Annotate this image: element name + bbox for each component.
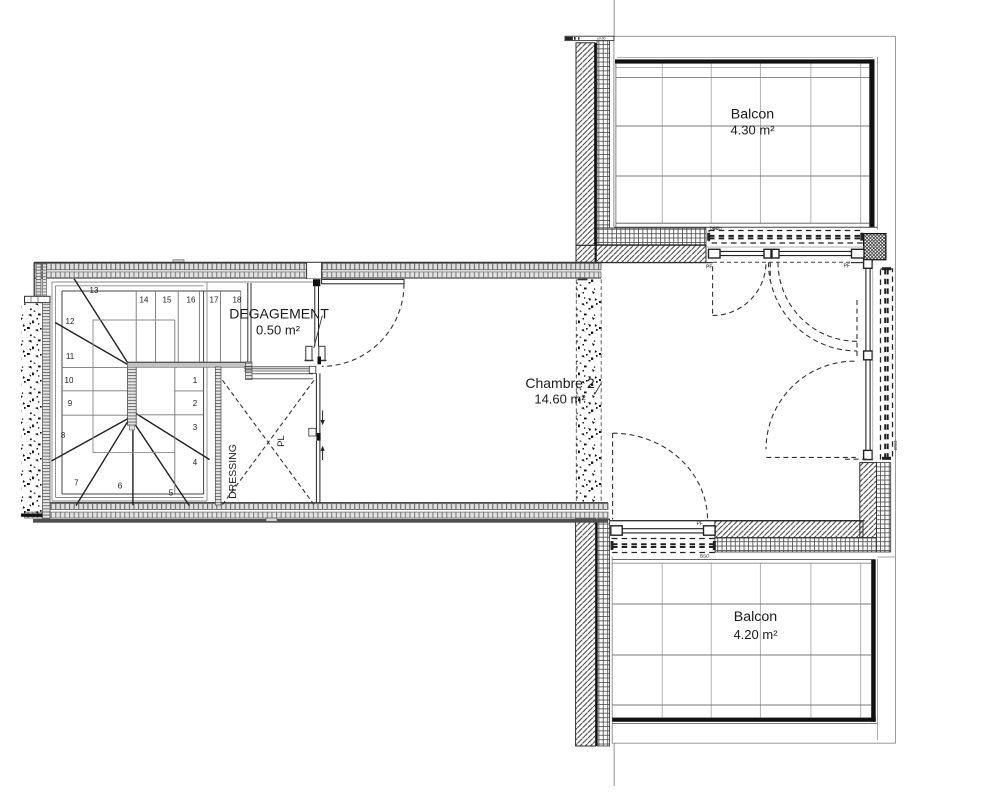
svg-text:PL: PL	[276, 435, 287, 447]
svg-text:14.60 m²: 14.60 m²	[534, 392, 586, 407]
svg-text:DEGAGEMENT: DEGAGEMENT	[229, 306, 329, 322]
svg-text:18: 18	[233, 295, 242, 304]
svg-text:Balcon: Balcon	[734, 609, 777, 625]
svg-text:BSO: BSO	[700, 554, 710, 559]
svg-text:Balcon: Balcon	[731, 106, 774, 122]
svg-text:8: 8	[61, 431, 66, 440]
svg-text:13: 13	[90, 286, 99, 295]
svg-text:16: 16	[187, 295, 196, 304]
svg-text:PF: PF	[697, 521, 703, 527]
svg-text:9: 9	[68, 399, 73, 408]
svg-text:5: 5	[169, 488, 174, 497]
svg-text:BSO: BSO	[893, 440, 898, 450]
svg-text:7: 7	[74, 478, 79, 487]
svg-text:DRESSING: DRESSING	[227, 444, 239, 499]
svg-text:12: 12	[66, 317, 75, 326]
svg-text:11: 11	[66, 352, 75, 361]
svg-text:10: 10	[65, 376, 74, 385]
svg-text:4: 4	[193, 458, 198, 467]
svg-text:17: 17	[210, 295, 219, 304]
svg-text:0.50 m²: 0.50 m²	[256, 323, 301, 338]
svg-text:PF: PF	[706, 265, 712, 271]
svg-text:15: 15	[163, 295, 172, 304]
svg-text:±0,00: ±0,00	[597, 37, 606, 41]
svg-text:14: 14	[140, 295, 149, 304]
svg-text:6: 6	[118, 481, 123, 490]
svg-text:1: 1	[193, 376, 198, 385]
svg-text:2: 2	[193, 399, 198, 408]
svg-text:PF: PF	[844, 264, 850, 270]
svg-text:4.20 m²: 4.20 m²	[733, 627, 778, 642]
svg-text:Chambre 2: Chambre 2	[525, 375, 594, 391]
svg-text:BSO: BSO	[713, 226, 723, 231]
svg-text:4.30 m²: 4.30 m²	[730, 122, 775, 137]
svg-text:3: 3	[193, 423, 198, 432]
